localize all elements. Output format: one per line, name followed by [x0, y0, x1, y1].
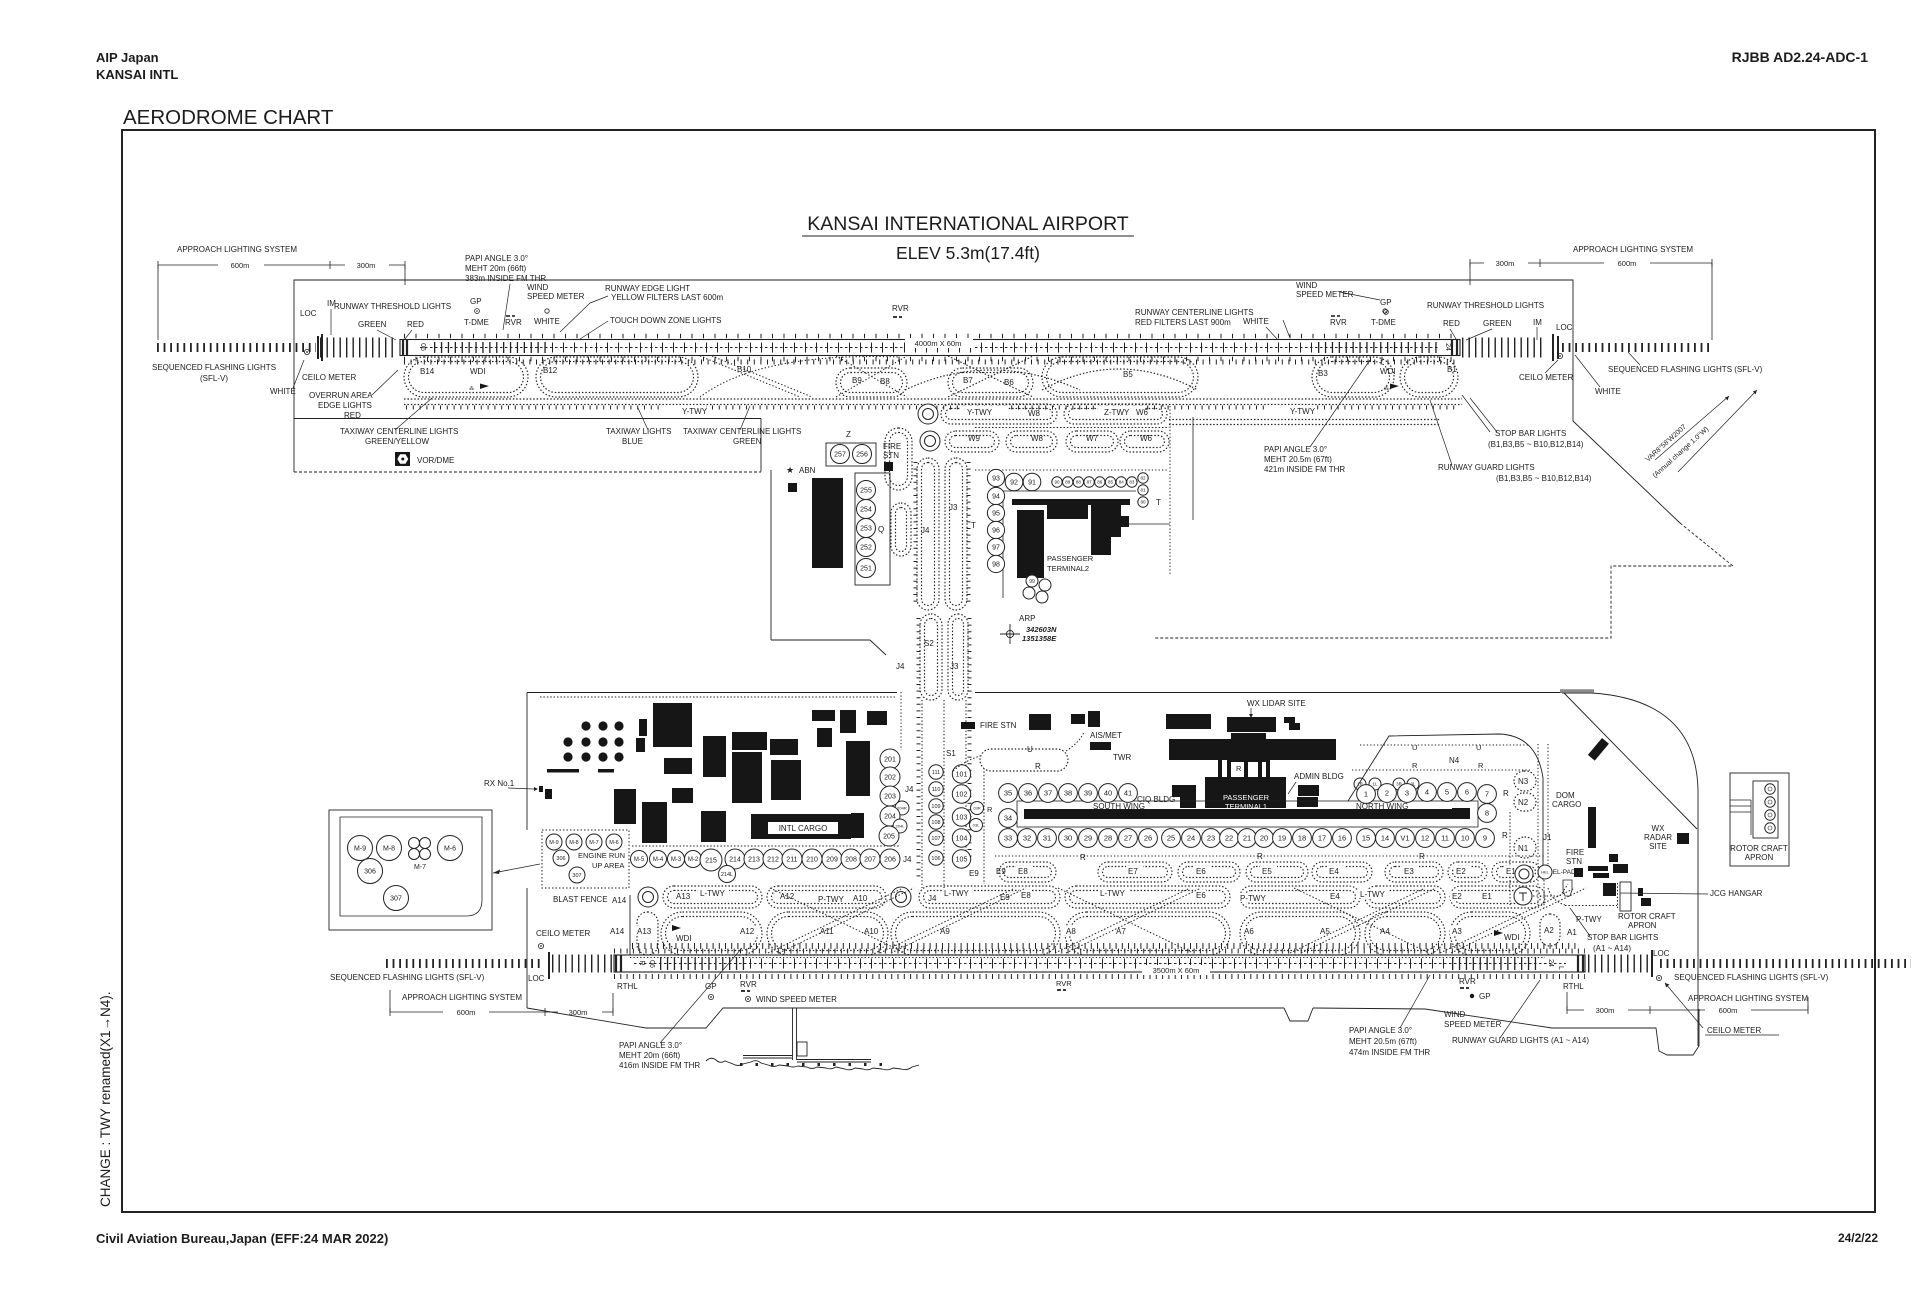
svg-text:E2: E2 [1456, 867, 1466, 876]
svg-text:W6: W6 [1140, 434, 1153, 443]
svg-text:A13: A13 [637, 927, 652, 936]
svg-text:342603N: 342603N [1026, 625, 1057, 634]
svg-text:102: 102 [956, 792, 968, 799]
svg-text:24: 24 [1444, 343, 1451, 351]
svg-text:M-9: M-9 [354, 846, 366, 853]
svg-text:(B1,B3,B5 ~ B10,B12,B14): (B1,B3,B5 ~ B10,B12,B14) [1496, 474, 1592, 483]
svg-text:R: R [1478, 761, 1484, 770]
svg-text:L-TWY: L-TWY [1360, 890, 1386, 899]
svg-text:R: R [1419, 852, 1425, 861]
svg-text:B1: B1 [1447, 365, 1457, 374]
svg-text:33: 33 [1004, 834, 1012, 843]
svg-text:PAPI ANGLE 3.0°: PAPI ANGLE 3.0° [1349, 1026, 1412, 1035]
svg-text:L: L [1557, 966, 1564, 970]
svg-text:ROTOR CRAFT: ROTOR CRAFT [1618, 912, 1676, 921]
svg-text:306: 306 [364, 869, 376, 876]
svg-text:M-7: M-7 [589, 840, 598, 846]
svg-text:WDI: WDI [1504, 933, 1520, 942]
svg-text:WHITE: WHITE [1243, 317, 1269, 326]
svg-text:600m: 600m [231, 261, 250, 270]
svg-text:E2: E2 [1452, 892, 1462, 901]
svg-text:Z: Z [846, 430, 851, 439]
svg-text:M-8: M-8 [383, 846, 395, 853]
svg-text:89: 89 [1065, 480, 1071, 485]
svg-text:LOC: LOC [528, 974, 545, 983]
svg-text:TAXIWAY CENTERLINE LIGHTS: TAXIWAY CENTERLINE LIGHTS [683, 427, 801, 436]
svg-text:94: 94 [992, 494, 1000, 501]
svg-text:RX No.1: RX No.1 [484, 779, 515, 788]
svg-text:DOM: DOM [1556, 791, 1575, 800]
svg-text:LOC: LOC [300, 309, 317, 318]
svg-text:AERODROME CHART: AERODROME CHART [123, 106, 334, 129]
svg-text:J4: J4 [928, 894, 937, 903]
svg-text:R: R [638, 960, 645, 965]
svg-text:82: 82 [1140, 476, 1146, 481]
svg-text:WDI: WDI [676, 934, 692, 943]
svg-text:SITE: SITE [1649, 842, 1667, 851]
svg-text:600m: 600m [1618, 259, 1637, 268]
svg-text:36: 36 [1024, 789, 1032, 798]
svg-text:86: 86 [1097, 480, 1103, 485]
svg-text:CIQ BLDG: CIQ BLDG [1137, 795, 1175, 804]
svg-text:9: 9 [1483, 834, 1487, 843]
svg-text:21: 21 [1243, 834, 1251, 843]
svg-text:03L: 03L [973, 822, 980, 827]
svg-text:306: 306 [556, 856, 565, 862]
svg-text:E9: E9 [996, 867, 1006, 876]
svg-text:383m INSIDE FM THR: 383m INSIDE FM THR [465, 274, 546, 283]
svg-text:APRON: APRON [1745, 853, 1774, 862]
svg-text:KANSAI INTL: KANSAI INTL [96, 67, 178, 82]
svg-text:B7: B7 [963, 376, 973, 385]
svg-text:31: 31 [1043, 834, 1051, 843]
svg-text:J4: J4 [896, 662, 905, 671]
svg-text:256: 256 [856, 452, 868, 459]
svg-text:V1: V1 [1400, 834, 1409, 843]
svg-text:STOP BAR LIGHTS: STOP BAR LIGHTS [1495, 429, 1566, 438]
svg-text:95: 95 [992, 511, 1000, 518]
svg-text:81: 81 [1140, 488, 1146, 493]
svg-text:4000m X 60m: 4000m X 60m [915, 339, 962, 348]
svg-text:RVR: RVR [505, 318, 522, 327]
svg-text:WIND: WIND [1296, 281, 1318, 290]
svg-text:RED: RED [1443, 319, 1460, 328]
svg-text:SPEED METER: SPEED METER [1444, 1020, 1502, 1029]
svg-text:E6: E6 [1196, 867, 1206, 876]
svg-text:92: 92 [1010, 480, 1018, 487]
svg-text:J1: J1 [1543, 833, 1552, 842]
svg-text:Z-TWY: Z-TWY [1104, 408, 1130, 417]
svg-text:110: 110 [932, 787, 941, 793]
svg-text:A10: A10 [864, 927, 879, 936]
svg-text:29: 29 [1084, 834, 1092, 843]
svg-text:A9: A9 [940, 927, 950, 936]
svg-text:CEILO METER: CEILO METER [302, 373, 356, 382]
svg-text:RUNWAY GUARD LIGHTS: RUNWAY GUARD LIGHTS [1438, 463, 1535, 472]
svg-text:213: 213 [748, 857, 760, 864]
svg-text:J4: J4 [921, 526, 930, 535]
svg-text:253: 253 [860, 526, 872, 533]
svg-text:PAPI ANGLE 3.0°: PAPI ANGLE 3.0° [465, 254, 528, 263]
svg-text:(SFL-V): (SFL-V) [200, 374, 228, 383]
svg-text:R: R [1503, 789, 1509, 798]
svg-text:252: 252 [860, 545, 872, 552]
svg-text:⁂: ⁂ [469, 386, 474, 392]
svg-text:WIND SPEED METER: WIND SPEED METER [756, 995, 837, 1004]
svg-text:STOP BAR LIGHTS: STOP BAR LIGHTS [1587, 933, 1658, 942]
svg-text:R: R [987, 805, 993, 814]
svg-text:RADAR: RADAR [1644, 833, 1672, 842]
svg-text:RUNWAY GUARD LIGHTS (A1 ~ A14): RUNWAY GUARD LIGHTS (A1 ~ A14) [1452, 1036, 1589, 1045]
svg-text:M-4: M-4 [653, 857, 664, 863]
svg-text:27: 27 [1124, 834, 1132, 843]
svg-text:R: R [1035, 762, 1041, 771]
svg-text:SEQUENCED FLASHING LIGHTS (SFL: SEQUENCED FLASHING LIGHTS (SFL-V) [330, 973, 485, 982]
svg-text:AIS/MET: AIS/MET [1090, 731, 1122, 740]
svg-text:A1: A1 [1567, 928, 1577, 937]
svg-text:N2: N2 [1518, 798, 1529, 807]
svg-text:WHITE: WHITE [1595, 387, 1621, 396]
svg-text:Y-TWY: Y-TWY [967, 408, 993, 417]
svg-text:APPROACH LIGHTING SYSTEM: APPROACH LIGHTING SYSTEM [1688, 994, 1808, 1003]
svg-text:FIRE: FIRE [883, 442, 901, 451]
svg-text:1L: 1L [1372, 782, 1378, 787]
svg-text:5: 5 [1445, 788, 1449, 797]
svg-text:20: 20 [1260, 834, 1268, 843]
svg-text:307: 307 [390, 896, 402, 903]
svg-text:18: 18 [1298, 834, 1306, 843]
svg-text:215: 215 [705, 858, 717, 865]
svg-text:RUNWAY CENTERLINE LIGHTS: RUNWAY CENTERLINE LIGHTS [1135, 308, 1254, 317]
svg-text:SEQUENCED FLASHING LIGHTS (SFL: SEQUENCED FLASHING LIGHTS (SFL-V) [1674, 973, 1829, 982]
svg-text:VAR8°58'W2007: VAR8°58'W2007 [1644, 423, 1688, 464]
svg-text:A5: A5 [1320, 927, 1330, 936]
svg-text:108: 108 [931, 820, 940, 826]
svg-text:WHITE: WHITE [534, 317, 560, 326]
svg-text:HEL: HEL [1541, 869, 1550, 874]
svg-text:80: 80 [1140, 500, 1146, 505]
svg-text:E4: E4 [1329, 867, 1339, 876]
svg-text:PAPI ANGLE 3.0°: PAPI ANGLE 3.0° [619, 1041, 682, 1050]
svg-text:LOC: LOC [1653, 949, 1670, 958]
svg-text:E8: E8 [1021, 891, 1031, 900]
svg-text:P-TWY: P-TWY [818, 895, 844, 904]
svg-text:211: 211 [786, 857, 797, 864]
svg-text:SPEED METER: SPEED METER [527, 292, 585, 301]
svg-text:RTHL: RTHL [617, 982, 638, 991]
svg-text:A12: A12 [780, 892, 795, 901]
svg-text:WIND: WIND [527, 283, 549, 292]
svg-text:T-DME: T-DME [464, 318, 489, 327]
svg-text:EDGE LIGHTS: EDGE LIGHTS [318, 401, 372, 410]
svg-text:03R: 03R [973, 805, 980, 810]
svg-text:97: 97 [992, 545, 1000, 552]
svg-text:APPROACH LIGHTING SYSTEM: APPROACH LIGHTING SYSTEM [402, 993, 522, 1002]
svg-text:6: 6 [1465, 788, 1469, 797]
svg-text:38: 38 [1064, 789, 1072, 798]
svg-text:GP: GP [1380, 298, 1392, 307]
svg-text:600m: 600m [1719, 1006, 1738, 1015]
svg-text:RVR: RVR [1056, 979, 1072, 988]
svg-text:MEHT 20.5m (67ft): MEHT 20.5m (67ft) [1264, 455, 1332, 464]
svg-text:600m: 600m [457, 1008, 476, 1017]
svg-text:R: R [1257, 852, 1263, 861]
svg-text:E5: E5 [1262, 867, 1272, 876]
svg-text:212: 212 [767, 857, 779, 864]
svg-text:N3: N3 [1518, 777, 1529, 786]
svg-text:L-TWY: L-TWY [700, 889, 726, 898]
svg-text:16: 16 [1338, 834, 1346, 843]
svg-text:17: 17 [1318, 834, 1326, 843]
svg-text:254: 254 [860, 507, 872, 514]
svg-text:IM: IM [1533, 318, 1542, 327]
svg-text:AIP Japan: AIP Japan [96, 50, 159, 65]
svg-text:APRON: APRON [1628, 921, 1657, 930]
svg-text:416m INSIDE FM THR: 416m INSIDE FM THR [619, 1061, 700, 1070]
svg-text:15: 15 [1362, 834, 1370, 843]
svg-text:J3: J3 [950, 662, 959, 671]
svg-text:U: U [1476, 743, 1481, 752]
svg-text:23: 23 [1207, 834, 1215, 843]
svg-text:A14: A14 [612, 896, 627, 905]
svg-text:85: 85 [1108, 480, 1114, 485]
svg-text:M-6: M-6 [609, 840, 618, 846]
svg-text:STN: STN [1566, 857, 1582, 866]
svg-text:96: 96 [992, 528, 1000, 535]
svg-text:R: R [1080, 853, 1086, 862]
svg-text:34: 34 [1004, 814, 1012, 823]
svg-text:JCG HANGAR: JCG HANGAR [1710, 889, 1763, 898]
svg-text:B3: B3 [1318, 369, 1328, 378]
svg-text:28: 28 [1104, 834, 1112, 843]
svg-text:S2: S2 [924, 639, 934, 648]
svg-text:RVR: RVR [1459, 977, 1476, 986]
svg-text:ENGINE RUN: ENGINE RUN [578, 851, 625, 860]
svg-text:25: 25 [1167, 834, 1175, 843]
svg-text:RTHL: RTHL [1563, 982, 1584, 991]
svg-text:A14: A14 [610, 927, 625, 936]
svg-text:CEILO METER: CEILO METER [536, 929, 590, 938]
svg-text:A6: A6 [1244, 927, 1254, 936]
svg-text:40: 40 [1104, 789, 1112, 798]
svg-text:91: 91 [1028, 480, 1036, 487]
svg-text:TOUCH DOWN ZONE LIGHTS: TOUCH DOWN ZONE LIGHTS [610, 316, 721, 325]
svg-text:4: 4 [1425, 788, 1429, 797]
svg-text:204L: 204L [896, 823, 906, 828]
svg-text:105: 105 [956, 857, 968, 864]
svg-text:24: 24 [1547, 959, 1554, 967]
svg-text:M-5: M-5 [634, 857, 645, 863]
svg-text:W7: W7 [1086, 434, 1099, 443]
svg-text:GREEN: GREEN [1483, 319, 1512, 328]
svg-text:W9: W9 [968, 434, 981, 443]
svg-text:300m: 300m [357, 261, 376, 270]
svg-text:474m INSIDE FM THR: 474m INSIDE FM THR [1349, 1048, 1430, 1057]
svg-text:12: 12 [1421, 834, 1429, 843]
svg-text:98: 98 [992, 562, 1000, 569]
svg-text:GP: GP [470, 297, 482, 306]
svg-text:B8: B8 [880, 377, 890, 386]
svg-text:E4: E4 [1330, 892, 1340, 901]
svg-text:⁂: ⁂ [1384, 386, 1389, 392]
svg-text:PASSENGER: PASSENGER [1047, 554, 1094, 563]
svg-text:STN: STN [883, 451, 899, 460]
svg-text:T: T [1156, 498, 1161, 507]
svg-text:104: 104 [956, 836, 968, 843]
svg-text:87: 87 [1087, 480, 1093, 485]
svg-text:RUNWAY THRESHOLD LIGHTS: RUNWAY THRESHOLD LIGHTS [1427, 301, 1544, 310]
svg-text:RUNWAY THRESHOLD LIGHTS: RUNWAY THRESHOLD LIGHTS [334, 302, 451, 311]
svg-text:Q: Q [878, 525, 884, 534]
svg-text:RVR: RVR [892, 304, 909, 313]
svg-text:T-DME: T-DME [1371, 318, 1396, 327]
svg-text:M-6: M-6 [444, 846, 456, 853]
svg-text:06: 06 [648, 960, 655, 968]
svg-text:210: 210 [806, 857, 818, 864]
svg-text:GP: GP [1479, 992, 1491, 1001]
svg-text:Y-TWY: Y-TWY [1290, 407, 1316, 416]
svg-text:E3: E3 [1404, 867, 1414, 876]
svg-text:E7: E7 [1128, 867, 1138, 876]
svg-text:ADMIN BLDG: ADMIN BLDG [1294, 772, 1344, 781]
svg-text:M-3: M-3 [671, 857, 682, 863]
svg-text:P-TWY: P-TWY [1576, 915, 1602, 924]
svg-text:255: 255 [860, 488, 872, 495]
svg-text:MEHT 20.5m (67ft): MEHT 20.5m (67ft) [1349, 1037, 1417, 1046]
svg-text:GP: GP [705, 982, 717, 991]
svg-text:SEQUENCED FLASHING LIGHTS: SEQUENCED FLASHING LIGHTS [152, 363, 276, 372]
svg-text:N4: N4 [1449, 756, 1460, 765]
svg-text:(B1,B3,B5 ~ B10,B12,B14): (B1,B3,B5 ~ B10,B12,B14) [1488, 440, 1584, 449]
svg-text:J4: J4 [905, 785, 914, 794]
svg-text:S1: S1 [946, 749, 956, 758]
svg-text:11: 11 [1441, 834, 1449, 843]
svg-text:YELLOW FILTERS LAST 600m: YELLOW FILTERS LAST 600m [611, 293, 724, 302]
svg-text:W6: W6 [1136, 408, 1149, 417]
svg-text:J4: J4 [903, 855, 912, 864]
svg-text:207: 207 [864, 857, 876, 864]
svg-text:W8: W8 [1028, 409, 1041, 418]
svg-text:VOR/DME: VOR/DME [417, 456, 454, 465]
svg-text:10: 10 [1461, 834, 1469, 843]
svg-text:U: U [1412, 743, 1417, 752]
svg-text:ARP: ARP [1019, 614, 1035, 623]
svg-text:202: 202 [884, 775, 896, 782]
svg-text:WDI: WDI [1380, 367, 1396, 376]
svg-text:E8: E8 [1018, 867, 1028, 876]
svg-text:93: 93 [992, 476, 1000, 483]
svg-text:26: 26 [1144, 834, 1152, 843]
svg-text:ROTOR CRAFT: ROTOR CRAFT [1730, 844, 1788, 853]
svg-text:J3: J3 [949, 503, 958, 512]
svg-text:B12: B12 [543, 366, 558, 375]
svg-text:WDI: WDI [470, 367, 486, 376]
svg-text:SEQUENCED FLASHING LIGHTS (SFL: SEQUENCED FLASHING LIGHTS (SFL-V) [1608, 365, 1763, 374]
svg-text:BLAST FENCE: BLAST FENCE [553, 895, 608, 904]
svg-text:RED: RED [344, 411, 361, 420]
svg-text:RVR: RVR [1330, 318, 1347, 327]
svg-text:M-7: M-7 [414, 864, 426, 871]
svg-text:U: U [1027, 745, 1033, 754]
svg-text:A3: A3 [1452, 927, 1462, 936]
svg-text:P-TWY: P-TWY [1240, 894, 1266, 903]
svg-text:L-TWY: L-TWY [1100, 889, 1126, 898]
svg-text:R: R [1412, 761, 1418, 770]
svg-text:1: 1 [1364, 790, 1368, 799]
svg-text:RUNWAY EDGE LIGHT: RUNWAY EDGE LIGHT [605, 284, 690, 293]
svg-text:257: 257 [834, 452, 846, 459]
svg-text:209: 209 [826, 857, 838, 864]
svg-text:Y-TWY: Y-TWY [682, 407, 708, 416]
svg-text:WX LIDAR SITE: WX LIDAR SITE [1247, 699, 1306, 708]
svg-text:30: 30 [1064, 834, 1072, 843]
svg-text:T: T [971, 521, 976, 530]
svg-text:PAPI ANGLE 3.0°: PAPI ANGLE 3.0° [1264, 445, 1327, 454]
svg-text:CEILO METER: CEILO METER [1519, 373, 1573, 382]
svg-text:203: 203 [884, 794, 896, 801]
svg-text:FIRE: FIRE [1566, 848, 1584, 857]
svg-text:R: R [1502, 831, 1508, 840]
svg-text:A7: A7 [1116, 927, 1126, 936]
svg-text:RED: RED [407, 320, 424, 329]
svg-text:421m INSIDE FM THR: 421m INSIDE FM THR [1264, 465, 1345, 474]
svg-text:24/2/22: 24/2/22 [1838, 1231, 1878, 1245]
svg-text:8: 8 [1485, 809, 1489, 818]
svg-text:204: 204 [884, 814, 896, 821]
svg-text:TAXIWAY LIGHTS: TAXIWAY LIGHTS [606, 427, 672, 436]
svg-text:LOC: LOC [1556, 323, 1573, 332]
svg-text:KANSAI INTERNATIONAL AIRPORT: KANSAI INTERNATIONAL AIRPORT [807, 213, 1129, 235]
svg-text:24: 24 [1187, 834, 1195, 843]
svg-text:GREEN: GREEN [358, 320, 387, 329]
svg-text:N1: N1 [1518, 844, 1529, 853]
svg-text:251: 251 [860, 566, 872, 573]
svg-text:A11: A11 [820, 927, 834, 936]
svg-text:35: 35 [1004, 789, 1012, 798]
svg-text:TWR: TWR [1113, 753, 1131, 762]
svg-text:32: 32 [1023, 834, 1031, 843]
svg-text:B14: B14 [420, 367, 435, 376]
svg-text:BLUE: BLUE [622, 437, 643, 446]
svg-text:107: 107 [931, 836, 940, 842]
svg-text:MEHT 20m (66ft): MEHT 20m (66ft) [465, 264, 527, 273]
svg-text:E1: E1 [1482, 892, 1492, 901]
svg-text:205: 205 [883, 834, 895, 841]
svg-text:ELEV 5.3m(17.4ft): ELEV 5.3m(17.4ft) [896, 243, 1040, 263]
svg-text:RED FILTERS LAST 900m: RED FILTERS LAST 900m [1135, 318, 1231, 327]
svg-text:3: 3 [1405, 789, 1409, 798]
svg-text:B9: B9 [852, 376, 862, 385]
svg-text:B5: B5 [1123, 370, 1133, 379]
svg-text:101: 101 [956, 772, 968, 779]
svg-text:GREEN: GREEN [733, 437, 762, 446]
svg-text:41: 41 [1124, 789, 1132, 798]
svg-text:39: 39 [1084, 789, 1092, 798]
svg-text:214L: 214L [721, 872, 733, 878]
svg-text:206: 206 [884, 857, 896, 864]
svg-text:WX: WX [1652, 824, 1666, 833]
svg-text:37: 37 [1044, 789, 1052, 798]
svg-text:88: 88 [1076, 480, 1082, 485]
svg-text:109: 109 [931, 804, 940, 810]
svg-text:WHITE: WHITE [270, 387, 296, 396]
svg-text:L-TWY: L-TWY [944, 889, 970, 898]
svg-text:307: 307 [572, 873, 581, 879]
svg-text:300m: 300m [1496, 259, 1515, 268]
svg-text:90: 90 [1054, 480, 1060, 485]
svg-text:INTL CARGO: INTL CARGO [779, 824, 828, 833]
svg-text:M-8: M-8 [569, 840, 578, 846]
